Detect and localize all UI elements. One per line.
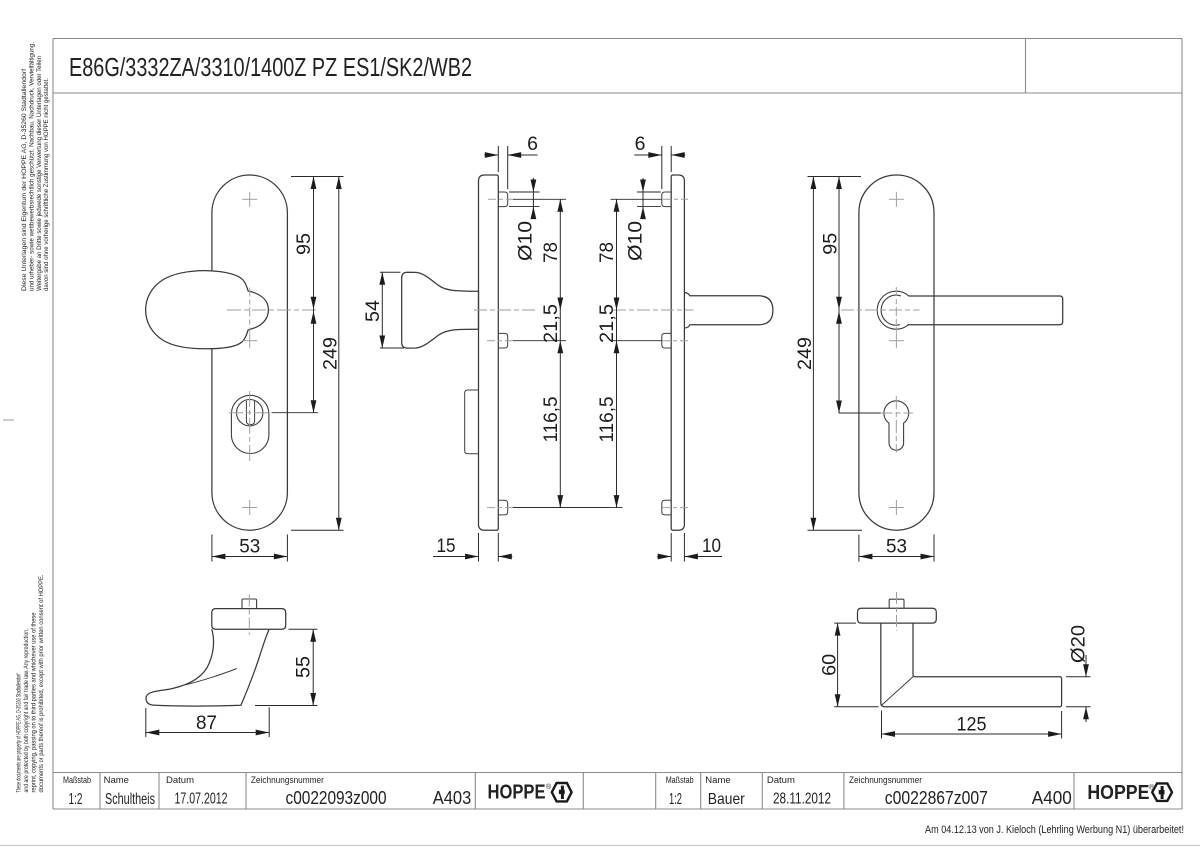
svg-text:15: 15	[437, 535, 456, 557]
svg-text:Weitergabe an Dritte sowie jed: Weitergabe an Dritte sowie jedwede sonst…	[36, 56, 43, 291]
svg-text:E86G/3332ZA/3310/1400Z PZ ES1/: E86G/3332ZA/3310/1400Z PZ ES1/SK2/WB2	[69, 52, 472, 82]
svg-text:Datum: Datum	[166, 775, 194, 786]
svg-text:53: 53	[239, 536, 260, 558]
svg-text:60: 60	[819, 654, 841, 676]
svg-text:Name: Name	[104, 775, 129, 786]
svg-text:Datum: Datum	[767, 775, 795, 786]
svg-text:documents or parts thereof is: documents or parts thereof is prohibited…	[38, 574, 45, 792]
svg-text:17.07.2012: 17.07.2012	[175, 791, 228, 808]
svg-text:und urheber- sowie wettbewerbs: und urheber- sowie wettbewerbsrechtlich …	[28, 42, 35, 291]
svg-text:Ø10: Ø10	[625, 221, 647, 261]
svg-text:reprint, copying, passing on t: reprint, copying, passing on to third pa…	[31, 612, 38, 792]
svg-text:A400: A400	[1032, 788, 1072, 808]
svg-text:c0022867z007: c0022867z007	[885, 788, 988, 808]
svg-text:28.11.2012: 28.11.2012	[773, 791, 831, 808]
svg-text:Ø10: Ø10	[515, 221, 537, 261]
svg-text:1:2: 1:2	[669, 791, 682, 808]
svg-text:54: 54	[362, 300, 384, 322]
svg-text:249: 249	[319, 337, 341, 370]
svg-text:Diese Unterlagen sind Eigentum: Diese Unterlagen sind Eigentum der HOPPE…	[21, 69, 28, 291]
svg-text:Maßstab: Maßstab	[666, 775, 694, 786]
svg-text:HOPPE: HOPPE	[1087, 781, 1149, 804]
svg-text:6: 6	[635, 133, 646, 155]
svg-text:®: ®	[546, 783, 552, 791]
svg-text:Zeichnungsnummer: Zeichnungsnummer	[849, 775, 922, 786]
svg-text:c0022093z000: c0022093z000	[286, 788, 387, 808]
svg-text:Schultheis: Schultheis	[105, 791, 155, 808]
svg-text:1:2: 1:2	[69, 791, 83, 808]
svg-text:21,5: 21,5	[540, 304, 562, 343]
svg-text:95: 95	[820, 233, 842, 255]
svg-text:Bauer: Bauer	[708, 791, 746, 808]
svg-text:55: 55	[293, 656, 315, 678]
svg-text:78: 78	[540, 242, 562, 263]
svg-text:Name: Name	[705, 775, 730, 786]
svg-text:These documents are property o: These documents are property of HOPPE AG…	[16, 673, 23, 792]
svg-text:95: 95	[293, 233, 315, 255]
svg-text:Am 04.12.13 von J. Kieloch (Le: Am 04.12.13 von J. Kieloch (Lehrling Wer…	[925, 824, 1184, 836]
svg-text:21,5: 21,5	[596, 304, 618, 343]
svg-text:116,5: 116,5	[540, 396, 562, 442]
svg-text:and are protected by both copy: and are protected by both copyright and …	[23, 628, 30, 792]
svg-text:Ø20: Ø20	[1068, 625, 1090, 663]
svg-text:116,5: 116,5	[596, 396, 618, 442]
svg-text:249: 249	[794, 337, 816, 370]
svg-text:davon sind ohne vorherige schr: davon sind ohne vorherige schriftliche Z…	[43, 78, 50, 291]
svg-text:78: 78	[596, 242, 618, 263]
svg-text:125: 125	[957, 713, 987, 735]
svg-text:Maßstab: Maßstab	[63, 775, 91, 786]
svg-text:6: 6	[527, 133, 538, 155]
svg-text:53: 53	[886, 536, 907, 558]
svg-text:10: 10	[702, 535, 721, 557]
svg-text:87: 87	[196, 712, 217, 734]
svg-text:HOPPE: HOPPE	[488, 781, 546, 804]
svg-text:A403: A403	[433, 788, 472, 808]
svg-text:Zeichnungsnummer: Zeichnungsnummer	[251, 775, 324, 786]
